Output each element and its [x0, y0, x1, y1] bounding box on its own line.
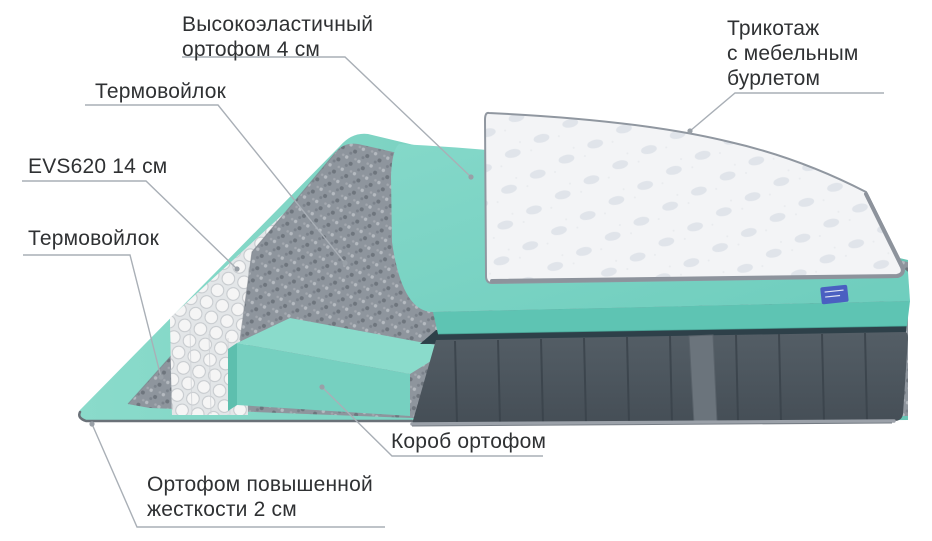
leader-dot-box [319, 384, 324, 389]
label-base-foam-line2: жесткости 2 см [147, 497, 373, 522]
label-top-foam-line2: ортофом 4 см [182, 37, 373, 62]
label-thermofelt-lower: Термовойлок [28, 226, 159, 251]
mattress-layers-diagram: Высокоэластичный ортофом 4 см Трикотаж с… [0, 0, 932, 541]
label-top-foam-line1: Высокоэластичный [182, 12, 373, 37]
label-knit: Трикотаж с мебельным бурлетом [727, 16, 859, 91]
label-knit-line1: Трикотаж [727, 16, 859, 41]
leader-dot-base-foam [89, 421, 94, 426]
leader-dot-knit [687, 128, 692, 133]
label-springs: EVS620 14 см [28, 154, 167, 179]
leader-dot-thermofelt-upper [342, 260, 347, 265]
label-knit-line2: с мебельным [727, 41, 859, 66]
handle-strap [689, 335, 717, 423]
label-thermofelt-upper: Термовойлок [95, 79, 226, 104]
leader-dot-top-foam [468, 174, 473, 179]
mattress-side-panel [412, 332, 908, 426]
label-base-foam-line1: Ортофом повышенной [147, 472, 373, 497]
label-knit-line3: бурлетом [727, 66, 859, 91]
leader-knit [690, 93, 884, 131]
leader-dot-thermofelt-lower [158, 374, 163, 379]
label-base-foam: Ортофом повышенной жесткости 2 см [147, 472, 373, 522]
quilted-top-cover [485, 113, 904, 283]
brand-tag [820, 285, 849, 305]
leader-dot-springs [234, 266, 239, 271]
label-top-foam: Высокоэластичный ортофом 4 см [182, 12, 373, 62]
label-box: Короб ортофом [391, 429, 546, 454]
